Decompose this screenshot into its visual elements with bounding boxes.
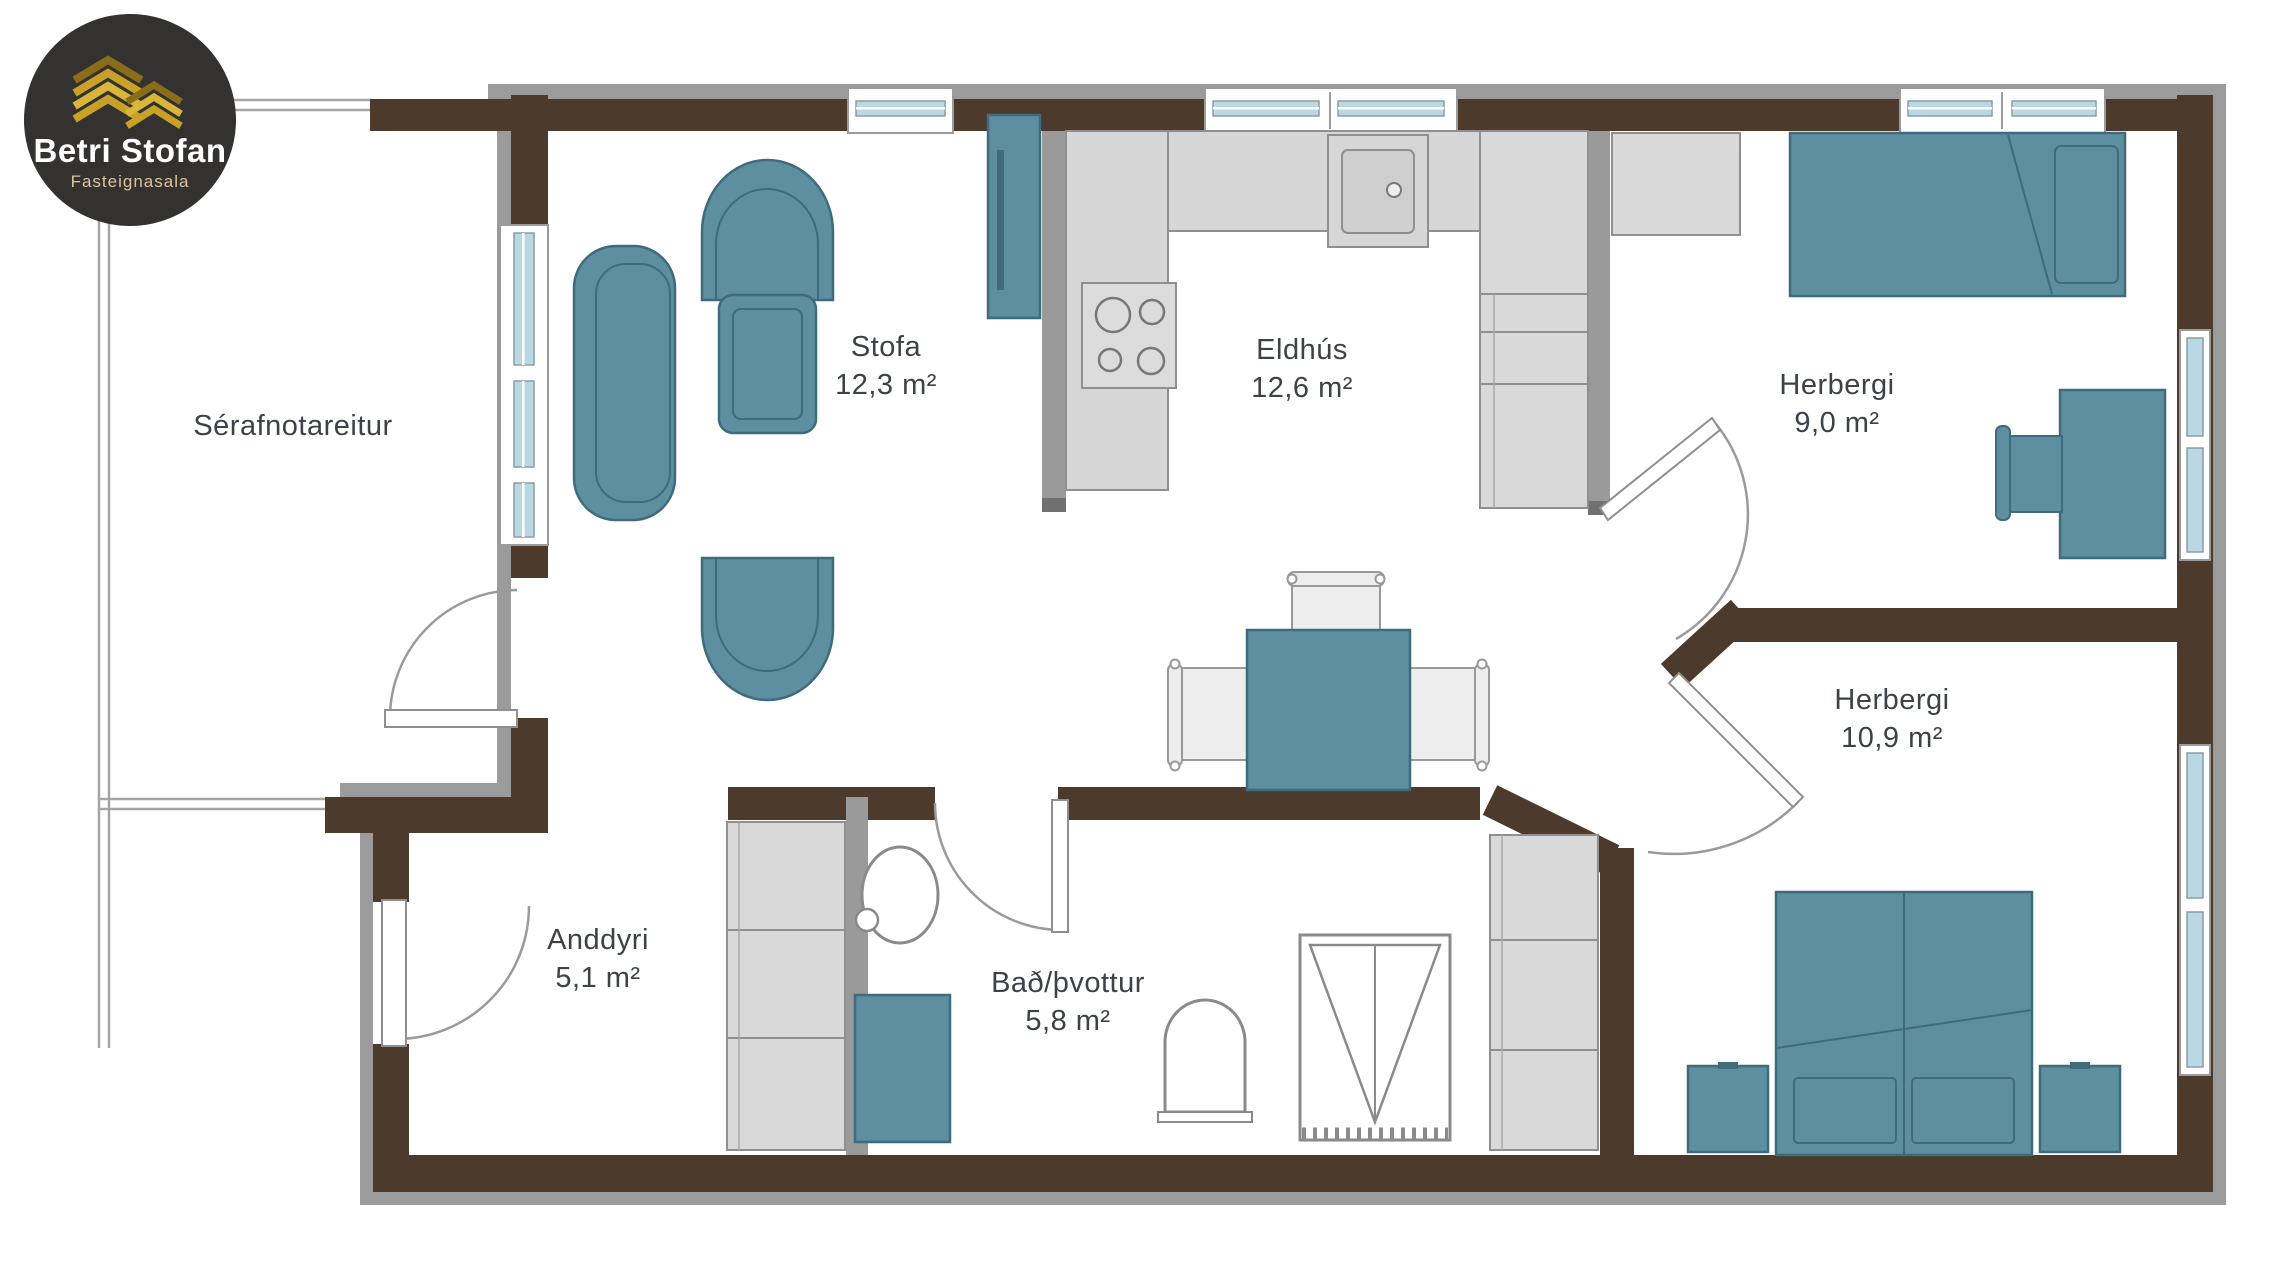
wardrobe-anddyri bbox=[727, 822, 845, 1150]
room-label-bad-thvottur: Bað/þvottur 5,8 m² bbox=[943, 964, 1193, 1040]
room-name: Stofa bbox=[786, 328, 986, 366]
bathroom-cabinets-right bbox=[1490, 835, 1598, 1150]
window-herbergi9-top bbox=[1900, 88, 2105, 133]
room-label-stofa: Stofa 12,3 m² bbox=[786, 328, 986, 404]
room-name: Herbergi bbox=[1737, 366, 1937, 404]
shower bbox=[1300, 935, 1450, 1140]
floor-plan-page: Sérafnotareitur Stofa 12,3 m² Eldhús 12,… bbox=[0, 0, 2291, 1280]
single-bed bbox=[1790, 133, 2125, 296]
room-area: 10,9 m² bbox=[1792, 719, 1992, 757]
agency-logo: Betri Stofan Fasteignasala bbox=[24, 14, 236, 226]
window-stofa-top bbox=[848, 88, 953, 133]
room-area: 9,0 m² bbox=[1737, 404, 1937, 442]
window-kitchen bbox=[1205, 88, 1457, 133]
room-area: 5,8 m² bbox=[943, 1002, 1193, 1040]
room-area: 12,6 m² bbox=[1202, 369, 1402, 407]
nightstand-left bbox=[1688, 1062, 1768, 1152]
nightstand-right bbox=[2040, 1062, 2120, 1152]
window-stofa-left bbox=[500, 225, 548, 545]
window-herbergi9-right bbox=[2180, 330, 2210, 560]
desk-chair bbox=[1996, 426, 2062, 520]
dining-chair-top bbox=[1288, 572, 1385, 632]
terrace-boundary bbox=[99, 96, 372, 1048]
kitchen-fixtures bbox=[1066, 131, 1588, 508]
logo-subtitle: Fasteignasala bbox=[71, 172, 190, 192]
logo-title: Betri Stofan bbox=[33, 132, 226, 170]
herbergi9-furniture bbox=[1612, 133, 2165, 558]
dining-set bbox=[1168, 572, 1489, 790]
kitchen-sink bbox=[1328, 135, 1428, 247]
stove bbox=[1082, 283, 1176, 388]
armchair-bottom bbox=[702, 558, 833, 700]
double-bed bbox=[1776, 892, 2032, 1155]
wardrobe-herbergi9 bbox=[1612, 133, 1740, 235]
room-name: Herbergi bbox=[1792, 681, 1992, 719]
window-herbergi10-right bbox=[2180, 745, 2210, 1075]
room-label-serafnotareitur: Sérafnotareitur bbox=[148, 407, 438, 445]
kitchen-cabinets-right bbox=[1480, 131, 1588, 508]
herbergi10-furniture bbox=[1688, 892, 2120, 1155]
armchair-top bbox=[702, 160, 833, 300]
herbergi10-door bbox=[1648, 673, 1803, 854]
bathroom-cabinet-teal bbox=[855, 995, 950, 1142]
logo-buildings-icon bbox=[60, 42, 200, 134]
room-name: Bað/þvottur bbox=[943, 964, 1193, 1002]
room-area: 5,1 m² bbox=[498, 959, 698, 997]
bathroom-door bbox=[935, 800, 1068, 932]
floor-plan-drawing bbox=[0, 0, 2291, 1280]
toilet bbox=[856, 847, 938, 943]
dining-chair-left bbox=[1168, 660, 1247, 771]
room-label-anddyri: Anddyri 5,1 m² bbox=[498, 921, 698, 997]
dining-chair-right bbox=[1410, 660, 1489, 771]
dining-table bbox=[1247, 630, 1410, 790]
sofa bbox=[574, 246, 675, 520]
room-area: 12,3 m² bbox=[786, 366, 986, 404]
room-name: Eldhús bbox=[1202, 331, 1402, 369]
room-label-herbergi9: Herbergi 9,0 m² bbox=[1737, 366, 1937, 442]
desk bbox=[2060, 390, 2165, 558]
room-name: Anddyri bbox=[498, 921, 698, 959]
room-label-herbergi10: Herbergi 10,9 m² bbox=[1792, 681, 1992, 757]
room-label-eldhus: Eldhús 12,6 m² bbox=[1202, 331, 1402, 407]
room-name: Sérafnotareitur bbox=[148, 407, 438, 445]
tv-unit bbox=[988, 115, 1040, 318]
stofa-furniture bbox=[574, 115, 1040, 700]
